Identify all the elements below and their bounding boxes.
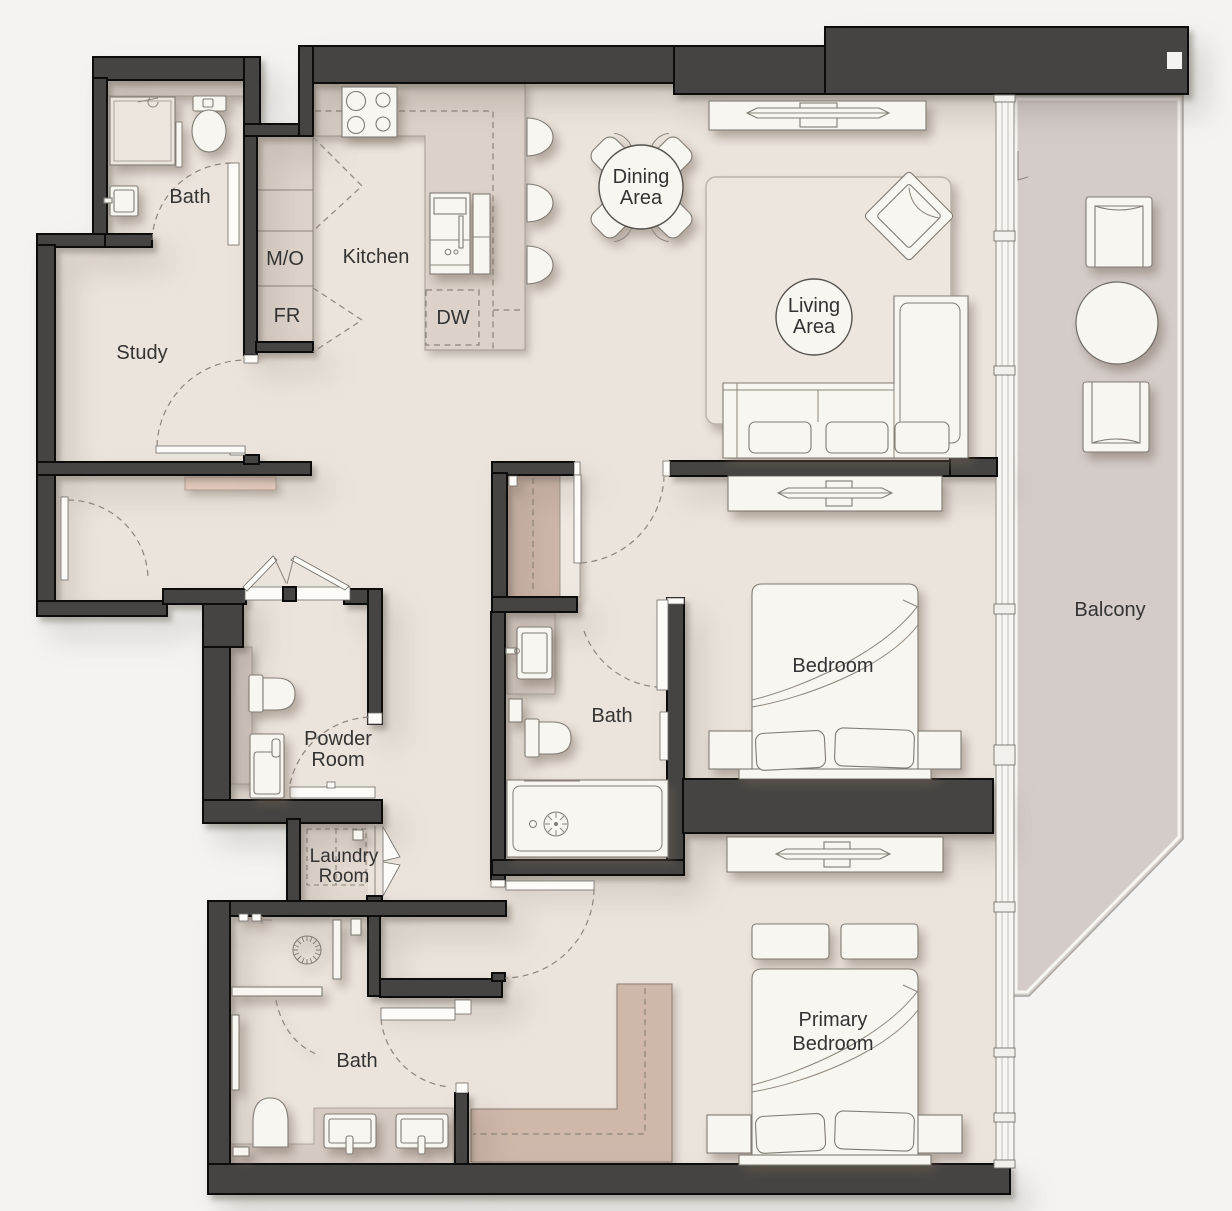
svg-text:Bedroom: Bedroom <box>792 655 873 677</box>
svg-text:Room: Room <box>311 749 364 771</box>
svg-text:Area: Area <box>620 187 663 209</box>
svg-text:Kitchen: Kitchen <box>343 246 410 268</box>
svg-text:Room: Room <box>319 866 370 887</box>
svg-text:Living: Living <box>788 295 840 317</box>
svg-text:M/O: M/O <box>266 248 304 270</box>
svg-text:Balcony: Balcony <box>1074 599 1145 621</box>
svg-text:Powder: Powder <box>304 728 372 750</box>
svg-text:DW: DW <box>436 307 469 329</box>
svg-text:FR: FR <box>274 305 301 327</box>
svg-text:Primary: Primary <box>799 1009 868 1031</box>
svg-text:Bath: Bath <box>336 1050 377 1072</box>
svg-text:Dining: Dining <box>613 166 670 188</box>
svg-text:Study: Study <box>116 342 167 364</box>
svg-text:Area: Area <box>793 316 836 338</box>
svg-text:Bedroom: Bedroom <box>792 1033 873 1055</box>
svg-text:Bath: Bath <box>169 186 210 208</box>
svg-text:Bath: Bath <box>591 705 632 727</box>
svg-text:Laundry: Laundry <box>310 846 379 867</box>
